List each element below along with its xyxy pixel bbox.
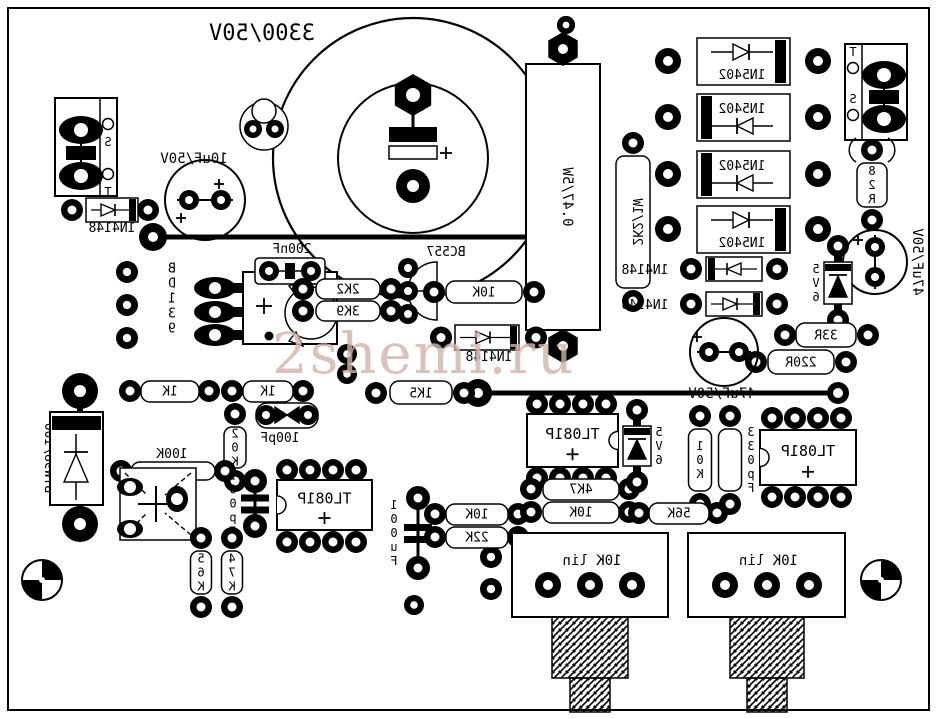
- resistor-56K-1: 56K: [190, 527, 212, 618]
- resistor-47K: 47K: [221, 527, 243, 618]
- svg-text:10K lin: 10K lin: [562, 553, 621, 569]
- svg-text:V: V: [655, 439, 662, 453]
- cap-3300uF-50V: 3300/50V: [209, 18, 553, 298]
- svg-text:10K: 10K: [465, 508, 489, 523]
- resistor-10K-3: 10K: [520, 501, 640, 523]
- pad-column: [116, 261, 138, 349]
- svg-text:0: 0: [229, 497, 236, 511]
- svg-text:0.47/5W: 0.47/5W: [559, 167, 575, 227]
- fiducial-bottom-left: [22, 560, 62, 600]
- svg-text:10K: 10K: [472, 286, 496, 301]
- svg-text:0: 0: [696, 453, 703, 467]
- svg-text:6: 6: [655, 453, 662, 467]
- svg-text:0: 0: [390, 512, 397, 526]
- svg-text:10uF/50V: 10uF/50V: [160, 151, 228, 167]
- resistor-2K2: 2K2: [292, 278, 402, 300]
- resistor-1K-1: 1K: [119, 380, 220, 402]
- resistor-10K-4: 10K: [689, 405, 712, 515]
- diode-1N5402-1: 1N5402: [655, 38, 831, 85]
- svg-text:3300/50V: 3300/50V: [209, 21, 315, 46]
- svg-text:1N5402: 1N5402: [719, 68, 766, 83]
- resistor-3K9: 3K9: [292, 300, 402, 322]
- svg-text:22K: 22K: [465, 531, 489, 546]
- svg-text:9: 9: [168, 322, 176, 337]
- svg-text:T: T: [849, 45, 856, 59]
- svg-text:3: 3: [747, 439, 754, 453]
- pcb-layout-image: 3300/50V0.47/5W2K2/1W1N54021N54021N54021…: [0, 0, 938, 719]
- svg-text:4: 4: [228, 552, 235, 566]
- svg-text:56K: 56K: [667, 507, 691, 522]
- svg-text:1N4148: 1N4148: [89, 221, 136, 236]
- pcb-silkscreen: 3300/50V0.47/5W2K2/1W1N54021N54021N54021…: [0, 0, 938, 719]
- svg-text:0: 0: [747, 453, 754, 467]
- cap-200nF: 200nF: [255, 242, 325, 284]
- svg-text:10K: 10K: [569, 506, 593, 521]
- svg-text:u: u: [390, 540, 397, 554]
- svg-text:0: 0: [229, 483, 236, 497]
- cap-100pF-1: 100pF: [256, 403, 318, 446]
- svg-text:TL081P: TL081P: [297, 490, 351, 508]
- svg-text:2: 2: [868, 178, 875, 192]
- resistor-33R: 33R: [774, 323, 879, 347]
- connector-right: TS: [845, 44, 907, 140]
- svg-text:D: D: [168, 277, 176, 292]
- connector-left: ST: [55, 98, 117, 199]
- svg-text:V: V: [812, 276, 819, 290]
- resistor-82R: 82R: [849, 138, 895, 231]
- svg-text:S: S: [104, 135, 111, 149]
- svg-text:K: K: [696, 467, 704, 481]
- svg-text:B: B: [168, 262, 176, 277]
- svg-text:1N5402: 1N5402: [719, 159, 766, 174]
- zener-5V6-2: 5V6: [623, 399, 663, 493]
- svg-text:8: 8: [868, 164, 875, 178]
- svg-text:K: K: [228, 580, 236, 594]
- svg-text:1N5402: 1N5402: [719, 102, 766, 117]
- svg-text:1K: 1K: [260, 385, 276, 400]
- svg-text:TL081P: TL081P: [545, 425, 599, 443]
- diode-1N5402-4: 1N5402: [655, 206, 831, 253]
- svg-text:200nF: 200nF: [272, 242, 311, 257]
- svg-text:p: p: [747, 467, 754, 481]
- svg-text:7: 7: [228, 566, 235, 580]
- svg-text:47uF/50V: 47uF/50V: [909, 228, 925, 296]
- resistor-0R47-5W: 0.47/5W: [526, 16, 600, 363]
- diode-1N5402-3: 1N5402: [655, 151, 831, 198]
- svg-text:F: F: [390, 554, 397, 568]
- svg-text:2K2: 2K2: [336, 283, 359, 298]
- svg-text:p: p: [229, 511, 236, 525]
- cap-330pF: 330pF: [719, 405, 755, 515]
- zener-5V6-1: 5V6: [812, 235, 852, 331]
- svg-text:0: 0: [231, 441, 238, 455]
- fiducial-bottom-right: [861, 560, 901, 600]
- svg-text:33R: 33R: [814, 329, 838, 344]
- svg-text:S: S: [849, 92, 856, 106]
- resistor-220R: 220R: [745, 350, 857, 374]
- svg-text:5: 5: [812, 262, 819, 276]
- svg-text:4K7: 4K7: [569, 483, 592, 498]
- ic-TL081P-3: TL081P: [760, 407, 856, 508]
- jumper-wire-2: [464, 379, 849, 407]
- svg-text:220R: 220R: [785, 356, 816, 371]
- cap-47uF-50V-1: 47uF/50V: [843, 228, 925, 296]
- svg-text:5: 5: [655, 425, 662, 439]
- svg-text:1: 1: [696, 439, 703, 453]
- resistor-2K2-1W: 2K2/1W: [616, 132, 650, 312]
- diode-1N4148-5: 1N4148: [622, 292, 788, 316]
- svg-text:2: 2: [231, 427, 238, 441]
- ic-TL081P-1: TL081P: [276, 459, 372, 553]
- svg-text:1N4148: 1N4148: [622, 298, 669, 313]
- svg-text:TL081P: TL081P: [781, 442, 835, 460]
- diode-BYW98-100: BYW98/100: [41, 373, 103, 542]
- svg-text:1K5: 1K5: [409, 387, 432, 402]
- pot-10K-lin-1: 10K lin: [512, 533, 668, 712]
- svg-text:1N5402: 1N5402: [719, 236, 766, 251]
- resistor-1K-2: 1K: [221, 380, 314, 402]
- svg-text:3K9: 3K9: [336, 305, 359, 320]
- cap-10uF-50V: 10uF/50V: [160, 151, 245, 240]
- svg-text:1: 1: [168, 292, 176, 307]
- svg-text:2K2/1W: 2K2/1W: [629, 198, 644, 245]
- trimmer: [117, 468, 196, 540]
- svg-text:F: F: [747, 481, 754, 495]
- svg-text:T: T: [104, 185, 111, 199]
- svg-text:BC557: BC557: [426, 245, 465, 260]
- svg-text:1K: 1K: [162, 385, 178, 400]
- svg-text:47uF/50V: 47uF/50V: [688, 386, 756, 402]
- svg-text:K: K: [197, 580, 205, 594]
- svg-text:100K: 100K: [156, 447, 187, 462]
- svg-text:3: 3: [747, 425, 754, 439]
- svg-text:100pF: 100pF: [260, 431, 299, 446]
- svg-text:6: 6: [197, 566, 204, 580]
- diode-1N5402-2: 1N5402: [655, 94, 831, 141]
- transistor-top: [240, 99, 288, 150]
- resistor-56K-2: 56K: [628, 502, 728, 524]
- ic-TL081P-2: TL081P: [526, 393, 618, 489]
- svg-text:R: R: [868, 192, 876, 206]
- svg-text:5: 5: [197, 552, 204, 566]
- resistor-4K7: 4K7: [520, 478, 640, 500]
- svg-text:1: 1: [390, 498, 397, 512]
- resistor-10K-2: 10K: [424, 503, 529, 525]
- resistor-1K5: 1K5: [365, 381, 475, 404]
- pot-10K-lin-2: 10K lin: [688, 533, 845, 712]
- svg-text:6: 6: [812, 290, 819, 304]
- svg-text:1N4148: 1N4148: [622, 263, 669, 278]
- resistor-10K-1: 10K: [423, 281, 545, 303]
- svg-text:1N4148: 1N4148: [466, 350, 513, 365]
- svg-text:10K lin: 10K lin: [739, 553, 798, 569]
- svg-text:3: 3: [168, 307, 176, 322]
- diode-1N4148-3: 1N4148: [430, 325, 547, 365]
- svg-text:0: 0: [390, 526, 397, 540]
